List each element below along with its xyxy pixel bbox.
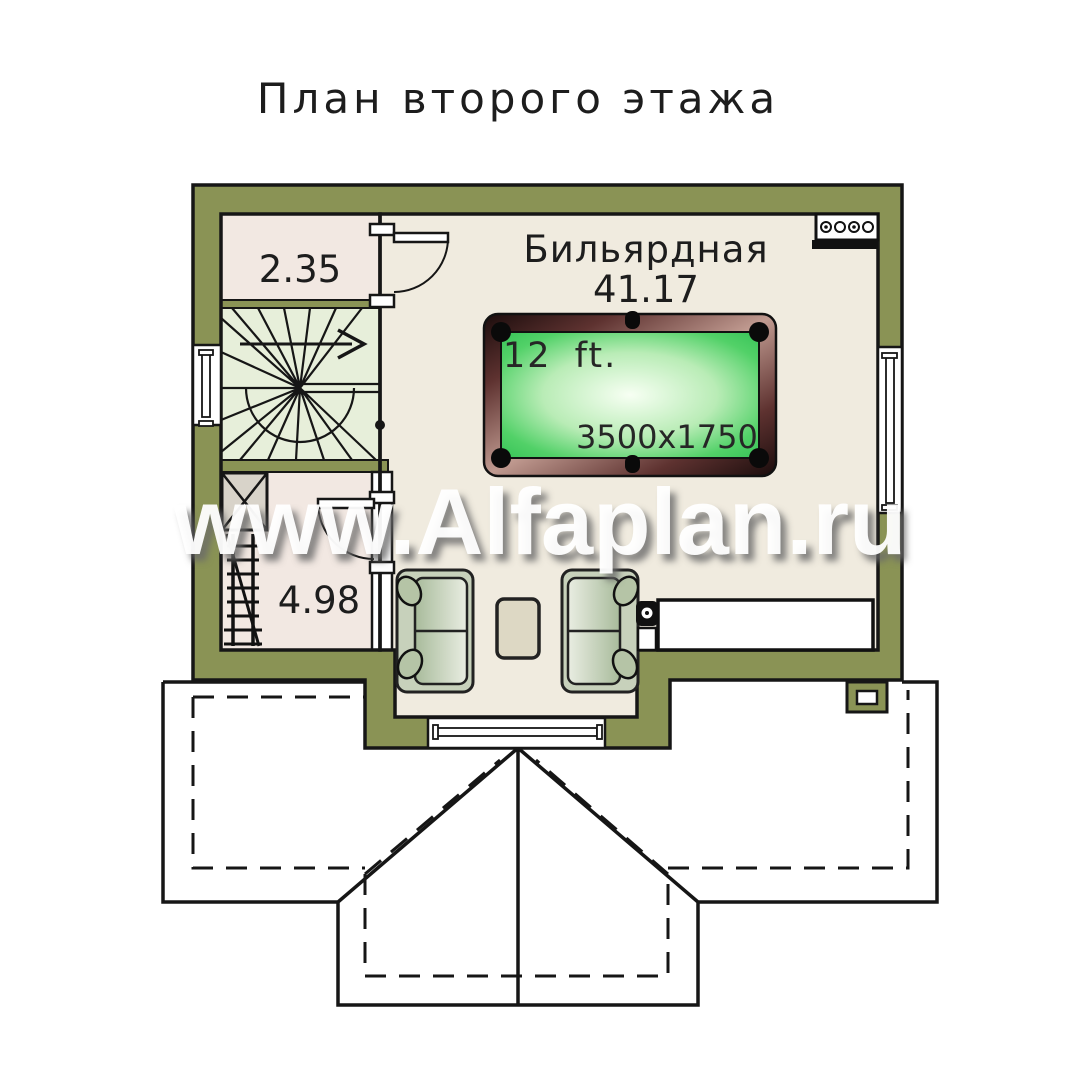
table-size-label: 12 ft.	[503, 336, 617, 376]
room-label-billiard-area: 41.17	[446, 268, 846, 311]
left-window	[193, 345, 221, 426]
room-label-storage-bottom: 4.98	[239, 579, 399, 622]
page-title: План второго этажа	[0, 74, 1036, 123]
tv-cabinet	[636, 600, 873, 650]
table-dimensions-label: 3500x1750	[576, 418, 758, 456]
room-label-billiard-name: Бильярдная	[446, 228, 846, 271]
watermark: www.Alfaplan.ru	[50, 468, 1030, 576]
chimney	[847, 682, 887, 712]
sofa-right	[562, 570, 643, 692]
floor-plan-page: План второго этажа Бильярдная 41.17 2.35…	[0, 0, 1080, 1080]
stair-newel-dot	[375, 420, 385, 430]
sofa-left	[392, 570, 473, 692]
room-label-storage-top: 2.35	[219, 248, 381, 291]
bay-window	[428, 718, 605, 748]
coffee-table	[497, 599, 539, 658]
